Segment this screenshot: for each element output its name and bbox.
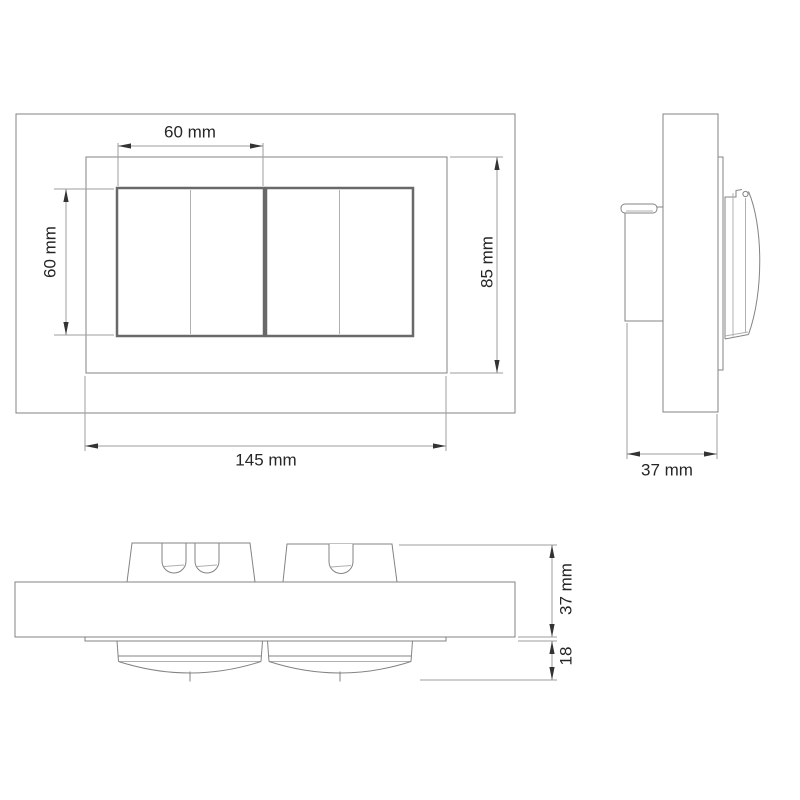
bottom-frame-edge <box>85 637 446 641</box>
side-rocker <box>725 190 760 340</box>
switch-dimension-drawing: 60 mm 60 mm 85 mm 145 mm <box>0 0 800 800</box>
bottom-plate <box>15 582 515 637</box>
dim-label-rocker-width: 60 mm <box>164 123 216 142</box>
rocker-side-edge <box>411 641 413 662</box>
front-view: 60 mm 60 mm 85 mm 145 mm <box>16 114 515 470</box>
rocker-curved-face <box>119 662 262 674</box>
dim-frame-width: 145 mm <box>85 376 446 470</box>
arrowhead <box>549 624 554 637</box>
side-view: 37 mm <box>621 114 760 480</box>
side-rocker-outer-curve <box>749 192 760 335</box>
bottom-rocker-left <box>117 641 263 682</box>
dim-label-rocker-projection: 18 <box>557 647 576 666</box>
rocker-curved-face <box>269 662 411 674</box>
side-rocker-hinge-pin <box>743 191 748 196</box>
dim-label-frame-height: 85 mm <box>478 236 497 288</box>
arrowhead <box>433 443 446 448</box>
arrowhead <box>494 157 499 170</box>
arrowhead <box>63 189 68 202</box>
arrowhead <box>549 641 554 654</box>
bottom-rocker-right <box>268 641 413 682</box>
dim-label-bottom-depth: 37 mm <box>557 563 576 615</box>
side-frame-edge <box>718 157 723 370</box>
arrowhead <box>704 451 717 456</box>
arrowhead <box>549 545 554 558</box>
claw-terminal <box>162 544 186 574</box>
claw-terminal <box>195 544 219 574</box>
arrowhead <box>118 143 131 148</box>
dim-label-rocker-height: 60 mm <box>41 226 60 278</box>
side-fixing-claw <box>621 204 657 213</box>
arrowhead <box>250 143 263 148</box>
rocker-side-edge <box>261 641 263 662</box>
bottom-mechanism-box-left <box>127 543 255 582</box>
claw-terminal <box>329 544 353 574</box>
dim-rocker-height: 60 mm <box>41 189 115 335</box>
arrowhead <box>63 322 68 335</box>
side-plate <box>663 114 718 412</box>
dim-label-frame-width: 145 mm <box>235 451 296 470</box>
dim-rocker-width: 60 mm <box>118 123 263 187</box>
rocker-side-edge <box>117 641 119 662</box>
arrowhead <box>494 360 499 373</box>
arrowhead <box>549 667 554 680</box>
dim-rocker-projection: 18 <box>420 641 576 680</box>
technical-drawing-page: 60 mm 60 mm 85 mm 145 mm <box>0 0 800 800</box>
side-mechanism-box <box>625 207 663 321</box>
arrowhead <box>85 443 98 448</box>
arrowhead <box>627 451 640 456</box>
bottom-view: 37 mm 18 <box>15 543 576 682</box>
rocker-side-edge <box>268 641 270 662</box>
dim-frame-height: 85 mm <box>450 157 503 373</box>
dim-label-side-depth: 37 mm <box>641 461 693 480</box>
